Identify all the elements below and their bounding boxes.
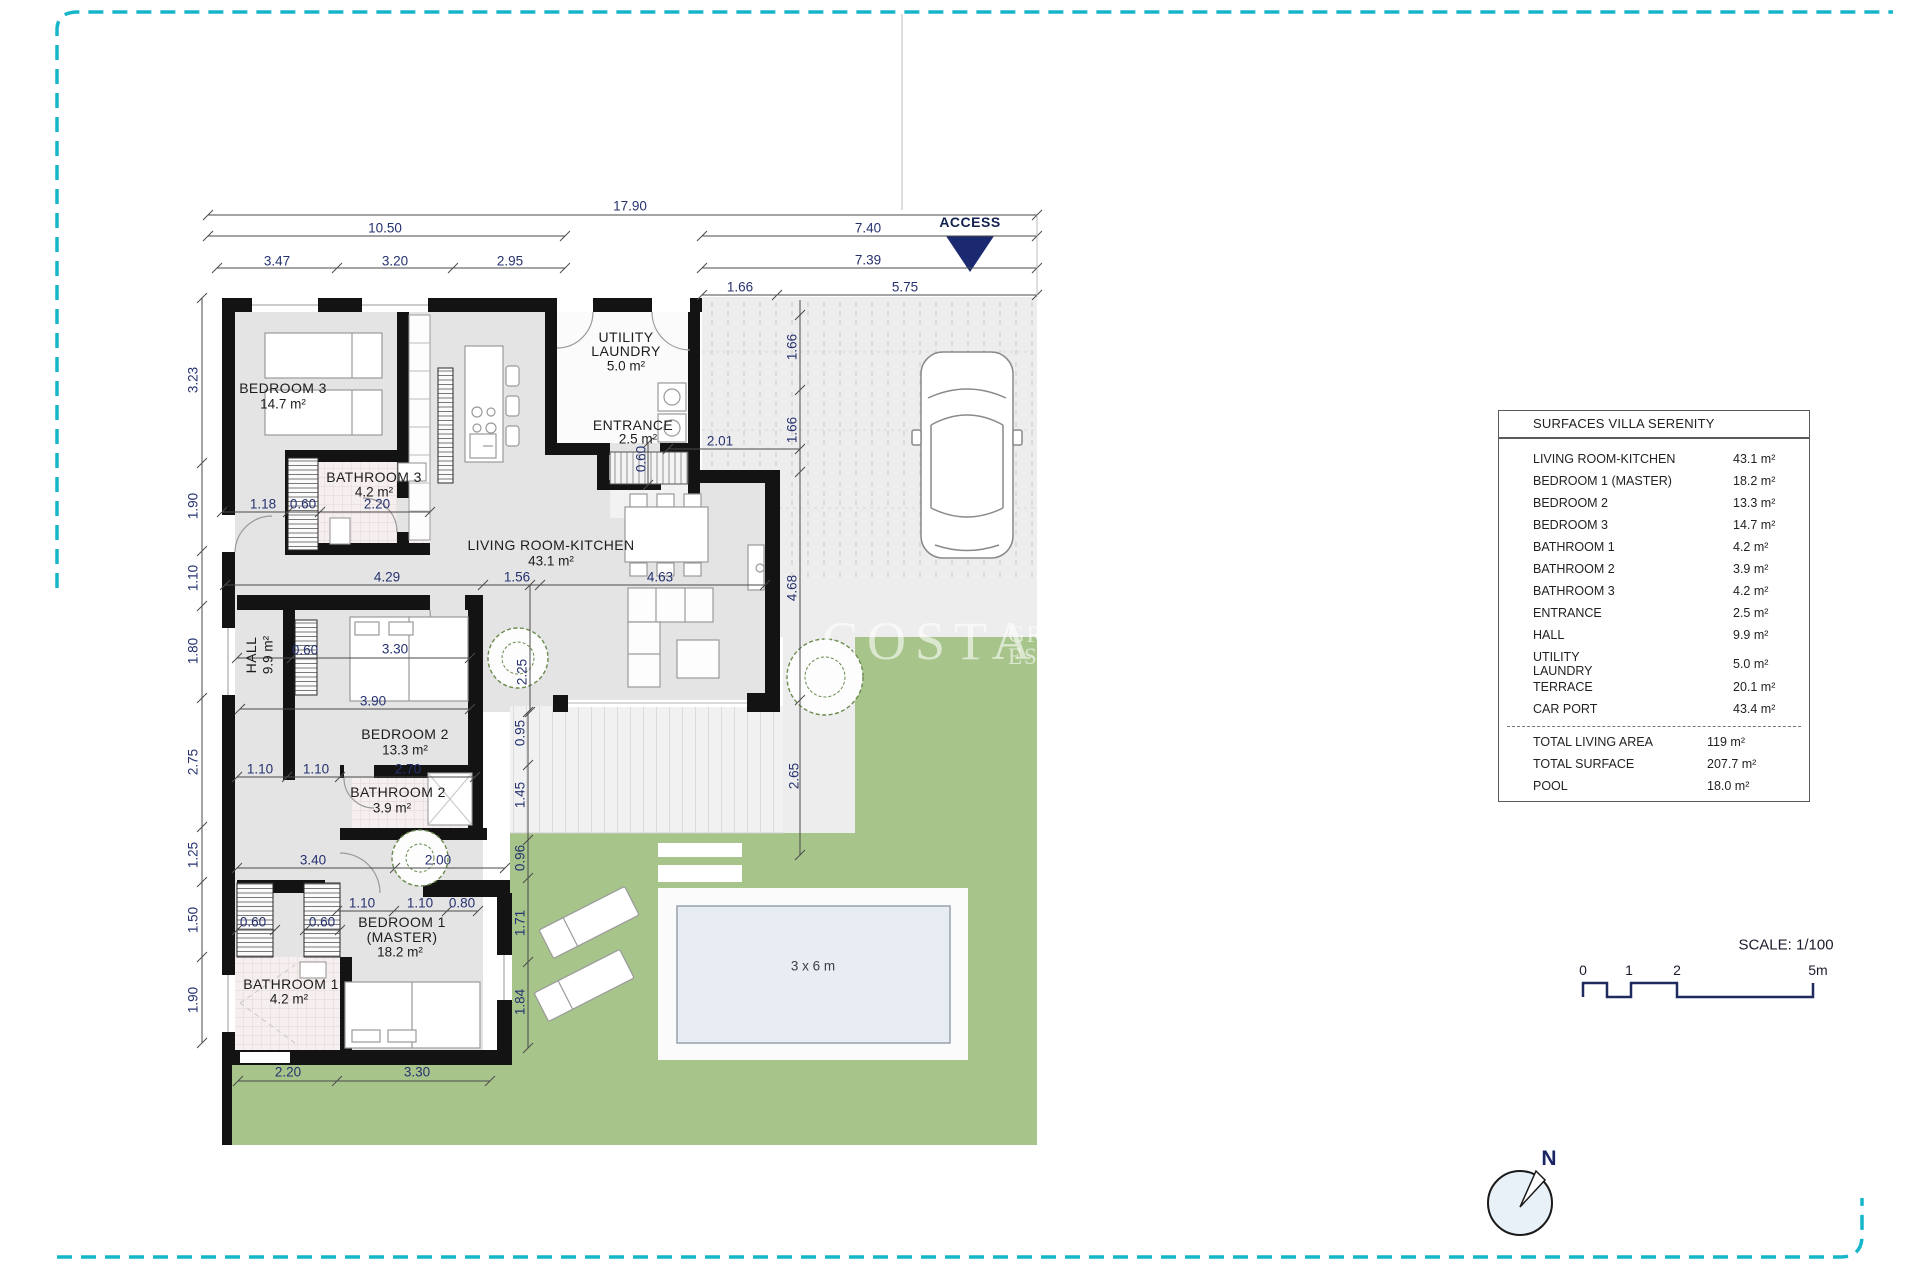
- surfaces-total-label: TOTAL LIVING AREA: [1533, 735, 1653, 749]
- surfaces-row-value: 43.4 m²: [1733, 702, 1775, 716]
- surfaces-row: BATHROOM 23.9 m²: [1533, 558, 1809, 580]
- surfaces-row: UTILITYLAUNDRY5.0 m²: [1533, 646, 1809, 676]
- surfaces-total-value: 18.0 m²: [1707, 779, 1749, 793]
- scale-tick-label: 5m: [1808, 962, 1827, 978]
- surfaces-row: BEDROOM 213.3 m²: [1533, 492, 1809, 514]
- scale-tick-label: 1: [1625, 962, 1633, 978]
- surfaces-row-value: 3.9 m²: [1733, 562, 1768, 576]
- surfaces-row-value: 18.2 m²: [1733, 474, 1775, 488]
- surfaces-row: CAR PORT43.4 m²: [1533, 698, 1809, 720]
- surfaces-row: TERRACE20.1 m²: [1533, 676, 1809, 698]
- surfaces-total-label: POOL: [1533, 779, 1568, 793]
- scale-label: SCALE: 1/100: [1738, 937, 1833, 954]
- scale-bar-icon: [1583, 983, 1813, 997]
- surfaces-row-value: 43.1 m²: [1733, 452, 1775, 466]
- surfaces-row-value: 14.7 m²: [1733, 518, 1775, 532]
- surfaces-row-value: 13.3 m²: [1733, 496, 1775, 510]
- surfaces-row: HALL9.9 m²: [1533, 624, 1809, 646]
- scale-tick-label: 0: [1579, 962, 1587, 978]
- surfaces-total-label: TOTAL SURFACE: [1533, 757, 1634, 771]
- dining-table: [625, 494, 708, 576]
- surfaces-row: BEDROOM 1 (MASTER)18.2 m²: [1533, 470, 1809, 492]
- surfaces-total-row: POOL18.0 m²: [1533, 779, 1801, 801]
- surfaces-row: BEDROOM 314.7 m²: [1533, 514, 1809, 536]
- surfaces-row: ENTRANCE2.5 m²: [1533, 602, 1809, 624]
- surfaces-table-rows: LIVING ROOM-KITCHEN43.1 m²BEDROOM 1 (MAS…: [1499, 439, 1809, 720]
- north-label: N: [1541, 1147, 1556, 1171]
- car-icon: [912, 352, 1022, 558]
- surfaces-table-title: SURFACES VILLA SERENITY: [1499, 411, 1809, 439]
- floor-plan-page: 17.9010.507.403.473.202.957.391.665.752.…: [0, 0, 1920, 1280]
- surfaces-row-value: 4.2 m²: [1733, 540, 1768, 554]
- scale-tick-label: 2: [1673, 962, 1681, 978]
- surfaces-total-value: 119 m²: [1707, 735, 1745, 749]
- surfaces-total-row: TOTAL LIVING AREA119 m²: [1533, 735, 1801, 757]
- surfaces-row: BATHROOM 34.2 m²: [1533, 580, 1809, 602]
- surfaces-row-value: 9.9 m²: [1733, 628, 1768, 642]
- surfaces-total-value: 207.7 m²: [1707, 757, 1756, 771]
- surfaces-row-value: 5.0 m²: [1733, 657, 1768, 671]
- surfaces-table: SURFACES VILLA SERENITY LIVING ROOM-KITC…: [1498, 410, 1810, 802]
- surfaces-row-value: 2.5 m²: [1733, 606, 1768, 620]
- access-triangle: [946, 236, 994, 272]
- surfaces-row-value: 4.2 m²: [1733, 584, 1768, 598]
- surfaces-table-totals: TOTAL LIVING AREA119 m²TOTAL SURFACE207.…: [1507, 726, 1801, 801]
- surfaces-row: LIVING ROOM-KITCHEN43.1 m²: [1533, 448, 1809, 470]
- north-compass-icon: [1488, 1171, 1552, 1235]
- entrance-steps: [610, 452, 688, 484]
- surfaces-row: BATHROOM 14.2 m²: [1533, 536, 1809, 558]
- surfaces-total-row: TOTAL SURFACE207.7 m²: [1533, 757, 1801, 779]
- surfaces-row-value: 20.1 m²: [1733, 680, 1775, 694]
- terrace-area: [510, 706, 783, 833]
